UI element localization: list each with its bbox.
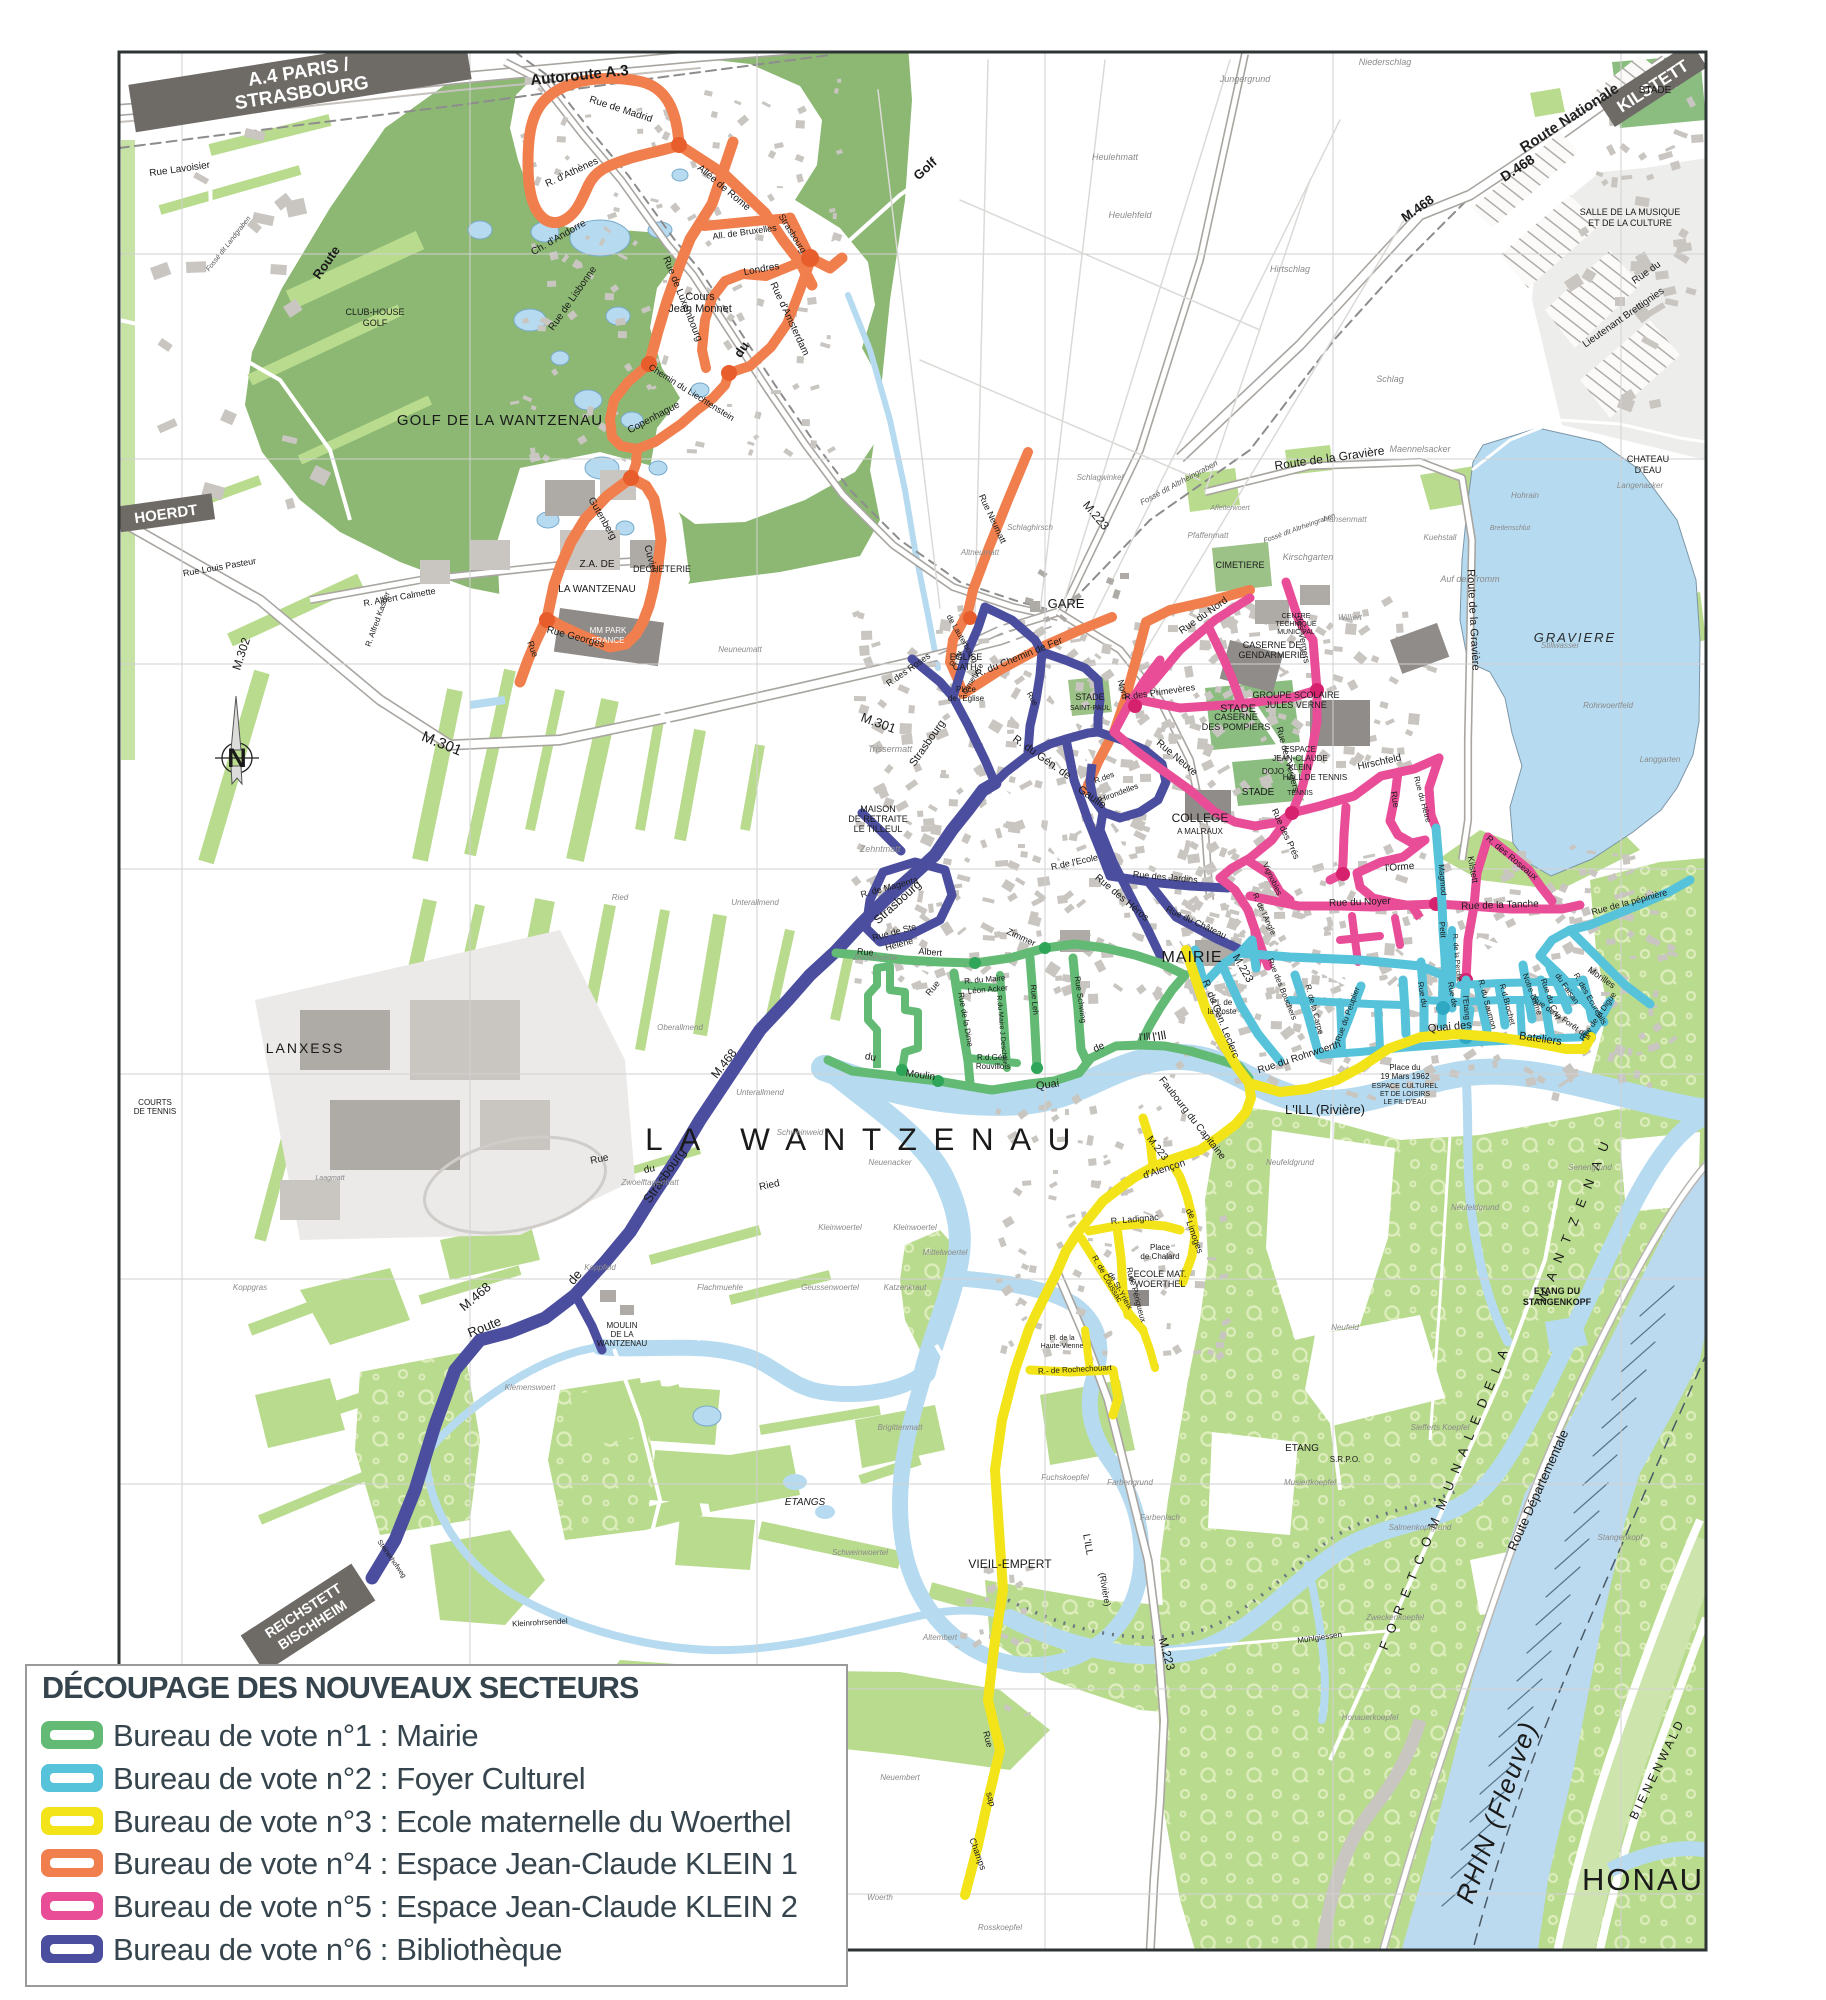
svg-text:Woerth: Woerth [867, 1893, 893, 1902]
svg-text:Williert: Williert [1338, 613, 1363, 622]
svg-text:Rosskoepfel: Rosskoepfel [978, 1923, 1022, 1932]
svg-text:COURTS: COURTS [138, 1098, 172, 1107]
svg-text:Breitenschlut: Breitenschlut [1490, 525, 1532, 532]
svg-text:Ried: Ried [612, 893, 629, 902]
svg-text:CASERNE DE: CASERNE DE [1243, 640, 1302, 650]
svg-text:Rue du Noyer: Rue du Noyer [1329, 896, 1392, 909]
svg-text:de Chalard: de Chalard [1140, 1252, 1179, 1261]
svg-text:TENNIS: TENNIS [1287, 790, 1313, 797]
svg-text:ETANG: ETANG [1285, 1443, 1319, 1454]
svg-text:ETANGS: ETANGS [785, 1497, 826, 1508]
svg-text:Kuehstall: Kuehstall [1424, 533, 1457, 542]
svg-text:GOLF: GOLF [363, 318, 388, 328]
svg-text:CLUB-HOUSE: CLUB-HOUSE [345, 307, 404, 317]
svg-text:Pl. de la: Pl. de la [1049, 1335, 1074, 1342]
svg-text:Neufeldgrund: Neufeldgrund [1451, 1203, 1500, 1212]
svg-text:Fuchskoepfel: Fuchskoepfel [1041, 1473, 1089, 1482]
svg-text:GOLF DE LA WANTZENAU: GOLF DE LA WANTZENAU [397, 412, 603, 429]
svg-text:GENDARMERIE: GENDARMERIE [1238, 650, 1305, 660]
svg-text:Geussenwoertel: Geussenwoertel [801, 1283, 859, 1292]
svg-text:Zwoelftagermatt: Zwoelftagermatt [620, 1178, 679, 1187]
svg-text:Unterallmend: Unterallmend [736, 1088, 784, 1097]
svg-text:MM PARK: MM PARK [590, 626, 627, 635]
svg-text:DE LA: DE LA [610, 1330, 634, 1339]
svg-text:Neuenacker: Neuenacker [868, 1158, 911, 1167]
svg-text:ETANG DU: ETANG DU [1534, 1286, 1580, 1296]
svg-text:Bureau de vote n°3 : Ecole mat: Bureau de vote n°3 : Ecole maternelle du… [113, 1804, 791, 1839]
svg-text:19 Mars 1962: 19 Mars 1962 [1381, 1072, 1430, 1081]
svg-text:CASERNE: CASERNE [1214, 712, 1258, 722]
svg-text:CIMETIERE: CIMETIERE [1215, 560, 1264, 570]
svg-text:Unterallmend: Unterallmend [731, 898, 779, 907]
svg-text:Salmenkopfgrund: Salmenkopfgrund [1389, 1523, 1452, 1532]
svg-text:Hirtschlag: Hirtschlag [1270, 264, 1310, 274]
svg-text:CHATEAU: CHATEAU [1627, 454, 1669, 464]
svg-text:Place du: Place du [1389, 1063, 1420, 1072]
svg-text:STADE: STADE [1242, 787, 1275, 798]
svg-text:STANGENKOPF: STANGENKOPF [1523, 1297, 1592, 1307]
svg-text:Altembert: Altembert [922, 1633, 958, 1642]
svg-text:VIEIL-EMPERT: VIEIL-EMPERT [968, 1557, 1052, 1571]
svg-text:MOULIN: MOULIN [606, 1321, 637, 1330]
svg-text:DES POMPIERS: DES POMPIERS [1202, 722, 1271, 732]
svg-text:Jungergrund: Jungergrund [1219, 74, 1272, 84]
svg-text:Laagmatt: Laagmatt [315, 1175, 345, 1182]
svg-text:Z.A. DE: Z.A. DE [579, 559, 614, 570]
svg-text:ESPACE CULTUREL: ESPACE CULTUREL [1372, 1083, 1438, 1090]
svg-text:LANXESS: LANXESS [266, 1040, 345, 1056]
svg-text:JULES VERNE: JULES VERNE [1265, 700, 1327, 710]
svg-text:DE RETRAITE: DE RETRAITE [848, 814, 908, 824]
svg-text:Place: Place [1150, 1243, 1171, 1252]
svg-text:Zweckenkoepfel: Zweckenkoepfel [1365, 1613, 1424, 1622]
svg-text:Musiertkoepfel: Musiertkoepfel [1284, 1478, 1336, 1487]
svg-text:JEAN-CLAUDE: JEAN-CLAUDE [1272, 754, 1328, 763]
svg-text:MUNICIPAL: MUNICIPAL [1277, 629, 1315, 636]
svg-text:Klemenswoert: Klemenswoert [505, 1383, 556, 1392]
svg-text:Stillwasser: Stillwasser [1541, 641, 1580, 650]
svg-text:Schweinweid: Schweinweid [777, 1128, 824, 1137]
svg-text:Niederschlag: Niederschlag [1359, 57, 1412, 67]
svg-text:du: du [864, 1051, 877, 1064]
svg-text:Schweinwoertel: Schweinwoertel [832, 1548, 888, 1557]
svg-text:Rouvillois: Rouvillois [976, 1062, 1010, 1071]
svg-text:Neuneumatt: Neuneumatt [718, 645, 762, 654]
svg-text:Brigittenmatt: Brigittenmatt [878, 1423, 924, 1432]
svg-text:LE FIL D'EAU: LE FIL D'EAU [1383, 1099, 1426, 1106]
svg-text:Trissermatt: Trissermatt [868, 744, 913, 754]
svg-text:Oberallmend: Oberallmend [657, 1023, 703, 1032]
svg-text:Bureau de vote n°5 : Espace Je: Bureau de vote n°5 : Espace Jean-Claude … [113, 1889, 798, 1924]
svg-text:R.d.Gén.: R.d.Gén. [977, 1053, 1009, 1062]
svg-text:Neufeld: Neufeld [1331, 1323, 1359, 1332]
svg-text:SAINT-PAUL: SAINT-PAUL [1070, 705, 1110, 712]
svg-text:ET DE LA CULTURE: ET DE LA CULTURE [1588, 218, 1672, 228]
svg-text:l'Ill: l'Ill [1151, 1028, 1167, 1044]
svg-text:WOERTHEL: WOERTHEL [1135, 1279, 1186, 1289]
svg-text:DOJO: DOJO [1262, 767, 1284, 776]
svg-text:Auf der Tromm: Auf der Tromm [1439, 574, 1500, 584]
svg-text:ET DE LOISIRS: ET DE LOISIRS [1380, 1091, 1430, 1098]
svg-text:Senengrund: Senengrund [1568, 1163, 1612, 1172]
svg-text:Flachmuehle: Flachmuehle [697, 1283, 743, 1292]
svg-text:Heulehfeld: Heulehfeld [1108, 210, 1152, 220]
svg-text:A MALRAUX: A MALRAUX [1177, 827, 1223, 836]
svg-text:Albert: Albert [918, 946, 943, 958]
svg-text:LE TILLEUL: LE TILLEUL [854, 824, 903, 834]
svg-text:Heulehmatt: Heulehmatt [1092, 152, 1139, 162]
svg-text:Schlag: Schlag [1376, 374, 1404, 384]
svg-text:Affelterwoert: Affelterwoert [1209, 505, 1250, 512]
svg-text:MAIRIE: MAIRIE [1161, 949, 1222, 966]
svg-text:Bureau de vote n°2 : Foyer Cul: Bureau de vote n°2 : Foyer Culturel [113, 1761, 585, 1796]
svg-text:WANTZENAU: WANTZENAU [597, 1339, 648, 1348]
svg-text:Haute-Vienne: Haute-Vienne [1041, 1343, 1084, 1350]
svg-text:Honauerkoepfel: Honauerkoepfel [1342, 1713, 1399, 1722]
svg-text:Koppfeld: Koppfeld [584, 1263, 616, 1272]
svg-text:du: du [643, 1163, 656, 1176]
svg-text:Siefferts Koepfel: Siefferts Koepfel [1411, 1423, 1470, 1432]
svg-text:l'Ill: l'Ill [1139, 1032, 1151, 1044]
svg-text:Maennelsacker: Maennelsacker [1389, 444, 1451, 454]
svg-text:Kleinwoertel: Kleinwoertel [893, 1223, 937, 1232]
svg-text:DÉCOUPAGE DES NOUVEAUX SECTEUR: DÉCOUPAGE DES NOUVEAUX SECTEURS [42, 1670, 639, 1705]
svg-text:Bureau de vote n°6 : Bibliothè: Bureau de vote n°6 : Bibliothèque [113, 1932, 562, 1967]
svg-text:HONAU: HONAU [1582, 1862, 1704, 1897]
svg-text:Hohrain: Hohrain [1511, 491, 1540, 500]
svg-text:LA WANTZENAU: LA WANTZENAU [558, 584, 635, 595]
svg-text:Pfaffenmatt: Pfaffenmatt [1188, 531, 1230, 540]
svg-text:Mittelwoertel: Mittelwoertel [923, 1248, 968, 1257]
svg-text:ECOLE MAT.: ECOLE MAT. [1134, 1269, 1187, 1279]
svg-text:MAISON: MAISON [860, 804, 896, 814]
svg-text:Zehntmatt: Zehntmatt [859, 844, 901, 854]
svg-text:Stangenkopf: Stangenkopf [1598, 1533, 1644, 1542]
svg-text:SALLE DE LA MUSIQUE: SALLE DE LA MUSIQUE [1580, 207, 1681, 217]
svg-text:D'EAU: D'EAU [1635, 465, 1662, 475]
svg-text:N: N [227, 743, 247, 773]
svg-text:DECHETERIE: DECHETERIE [633, 564, 691, 574]
svg-text:STADE: STADE [1075, 692, 1104, 702]
svg-text:DE TENNIS: DE TENNIS [134, 1107, 177, 1116]
svg-text:Bureau de vote n°1 : Mairie: Bureau de vote n°1 : Mairie [113, 1718, 478, 1753]
svg-text:Ziegelhuette: Ziegelhuette [852, 953, 898, 962]
svg-text:Kirschgarten: Kirschgarten [1283, 552, 1334, 562]
svg-text:Farbenlach: Farbenlach [1140, 1513, 1181, 1522]
svg-text:GARE: GARE [1048, 596, 1085, 611]
svg-text:Rohrwoertfeld: Rohrwoertfeld [1583, 701, 1633, 710]
svg-text:Kleinwoertel: Kleinwoertel [818, 1223, 862, 1232]
svg-text:Schlaghirsch: Schlaghirsch [1007, 523, 1053, 532]
svg-text:Jean Monnet: Jean Monnet [668, 303, 732, 315]
svg-text:GROUPE SCOLAIRE: GROUPE SCOLAIRE [1252, 690, 1339, 700]
svg-text:Altneumatt: Altneumatt [960, 548, 1000, 557]
svg-text:Bureau de vote n°4 : Espace Je: Bureau de vote n°4 : Espace Jean-Claude … [113, 1846, 798, 1881]
svg-text:Schlagwinkel: Schlagwinkel [1077, 473, 1124, 482]
svg-text:Petit: Petit [1437, 921, 1447, 939]
svg-text:S.R.P.O.: S.R.P.O. [1330, 1455, 1361, 1464]
svg-text:Koppgras: Koppgras [233, 1283, 267, 1292]
svg-text:Neuembert: Neuembert [880, 1773, 920, 1782]
svg-text:COLLEGE: COLLEGE [1172, 811, 1229, 825]
svg-text:Langenacker: Langenacker [1617, 481, 1664, 490]
svg-text:LA WANTZENAU: LA WANTZENAU [645, 1121, 1087, 1157]
svg-text:L'ILL (Rivière): L'ILL (Rivière) [1285, 1102, 1365, 1117]
svg-text:Farbengrund: Farbengrund [1107, 1478, 1153, 1487]
svg-text:STADE: STADE [1639, 85, 1672, 96]
svg-text:Katzenkraut: Katzenkraut [884, 1283, 927, 1292]
svg-text:Neufeldgrund: Neufeldgrund [1266, 1158, 1315, 1167]
svg-text:Langgarten: Langgarten [1640, 755, 1681, 764]
